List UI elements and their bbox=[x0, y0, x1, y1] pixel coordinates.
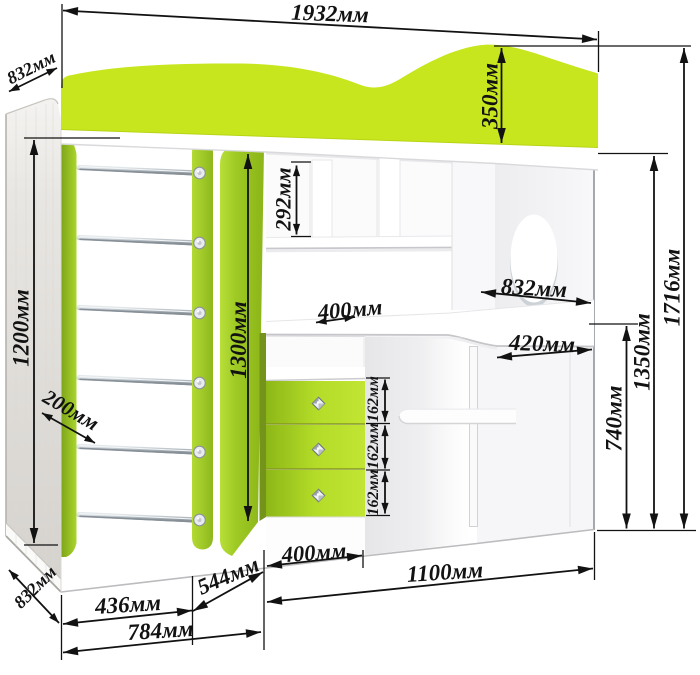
svg-text:1200мм: 1200мм bbox=[9, 289, 34, 367]
svg-text:162мм: 162мм bbox=[365, 423, 382, 469]
svg-text:436мм: 436мм bbox=[93, 590, 161, 619]
svg-text:1300мм: 1300мм bbox=[226, 301, 251, 379]
svg-text:1716мм: 1716мм bbox=[660, 249, 685, 327]
svg-text:420мм: 420мм bbox=[508, 330, 576, 357]
svg-text:400мм: 400мм bbox=[280, 538, 347, 568]
svg-text:162мм: 162мм bbox=[365, 376, 382, 422]
svg-text:162мм: 162мм bbox=[365, 470, 382, 516]
svg-text:740мм: 740мм bbox=[602, 385, 627, 451]
svg-text:832мм: 832мм bbox=[3, 47, 58, 88]
svg-text:784мм: 784мм bbox=[127, 616, 194, 645]
svg-text:350мм: 350мм bbox=[478, 63, 503, 130]
svg-text:832мм: 832мм bbox=[500, 274, 567, 302]
svg-text:292мм: 292мм bbox=[271, 167, 296, 231]
svg-text:1932мм: 1932мм bbox=[291, 0, 369, 27]
svg-text:1100мм: 1100мм bbox=[406, 557, 484, 587]
svg-text:832мм: 832мм bbox=[10, 562, 61, 613]
svg-text:1350мм: 1350мм bbox=[630, 313, 655, 391]
